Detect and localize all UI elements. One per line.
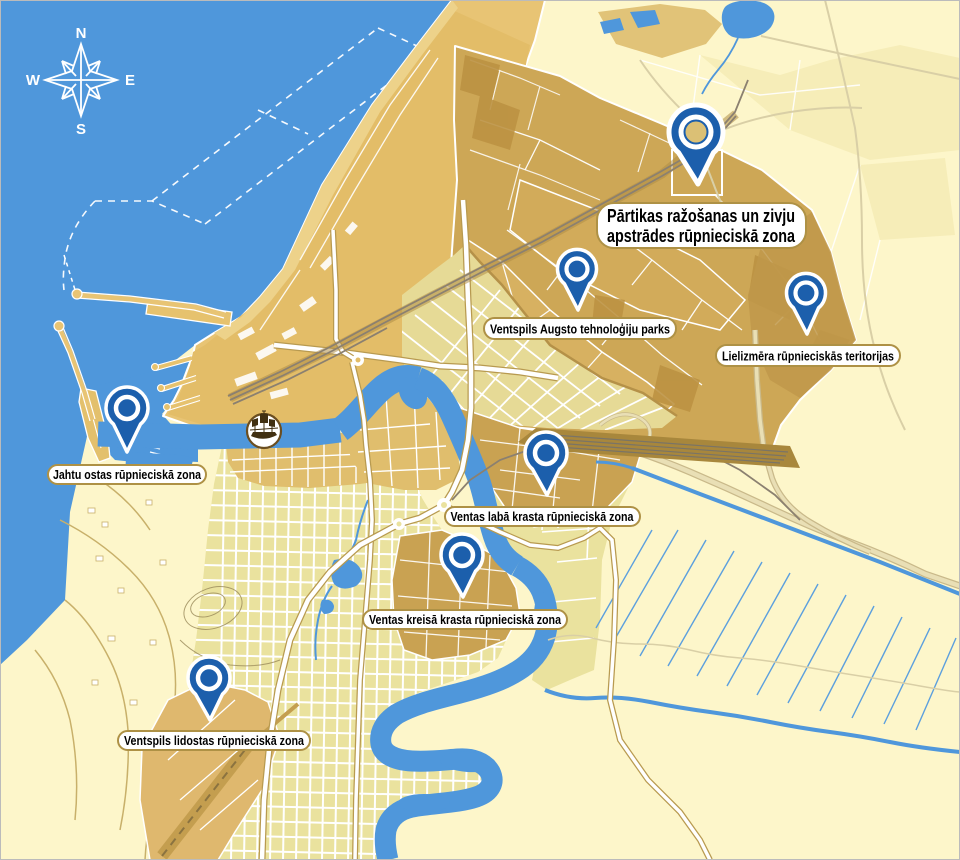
svg-text:S: S xyxy=(76,121,86,138)
svg-text:apstrādes rūpnieciskā zona: apstrādes rūpnieciskā zona xyxy=(607,225,796,246)
svg-text:E: E xyxy=(125,72,135,89)
svg-text:Ventas labā krasta rūpnieciskā: Ventas labā krasta rūpnieciskā zona xyxy=(451,510,635,524)
svg-text:Ventas kreisā krasta rūpniecis: Ventas kreisā krasta rūpnieciskā zona xyxy=(369,613,562,627)
svg-text:N: N xyxy=(76,25,87,42)
svg-text:Jahtu ostas rūpnieciskā zona: Jahtu ostas rūpnieciskā zona xyxy=(53,468,202,482)
svg-text:W: W xyxy=(26,72,41,89)
svg-text:Pārtikas ražošanas un zivju: Pārtikas ražošanas un zivju xyxy=(607,205,795,226)
svg-text:Ventspils lidostas rūpnieciskā: Ventspils lidostas rūpnieciskā zona xyxy=(124,734,305,748)
svg-text:Ventspils Augsto tehnoloģiju p: Ventspils Augsto tehnoloģiju parks xyxy=(490,322,670,337)
svg-text:Lielizmēra rūpnieciskās terito: Lielizmēra rūpnieciskās teritorijas xyxy=(722,349,894,364)
